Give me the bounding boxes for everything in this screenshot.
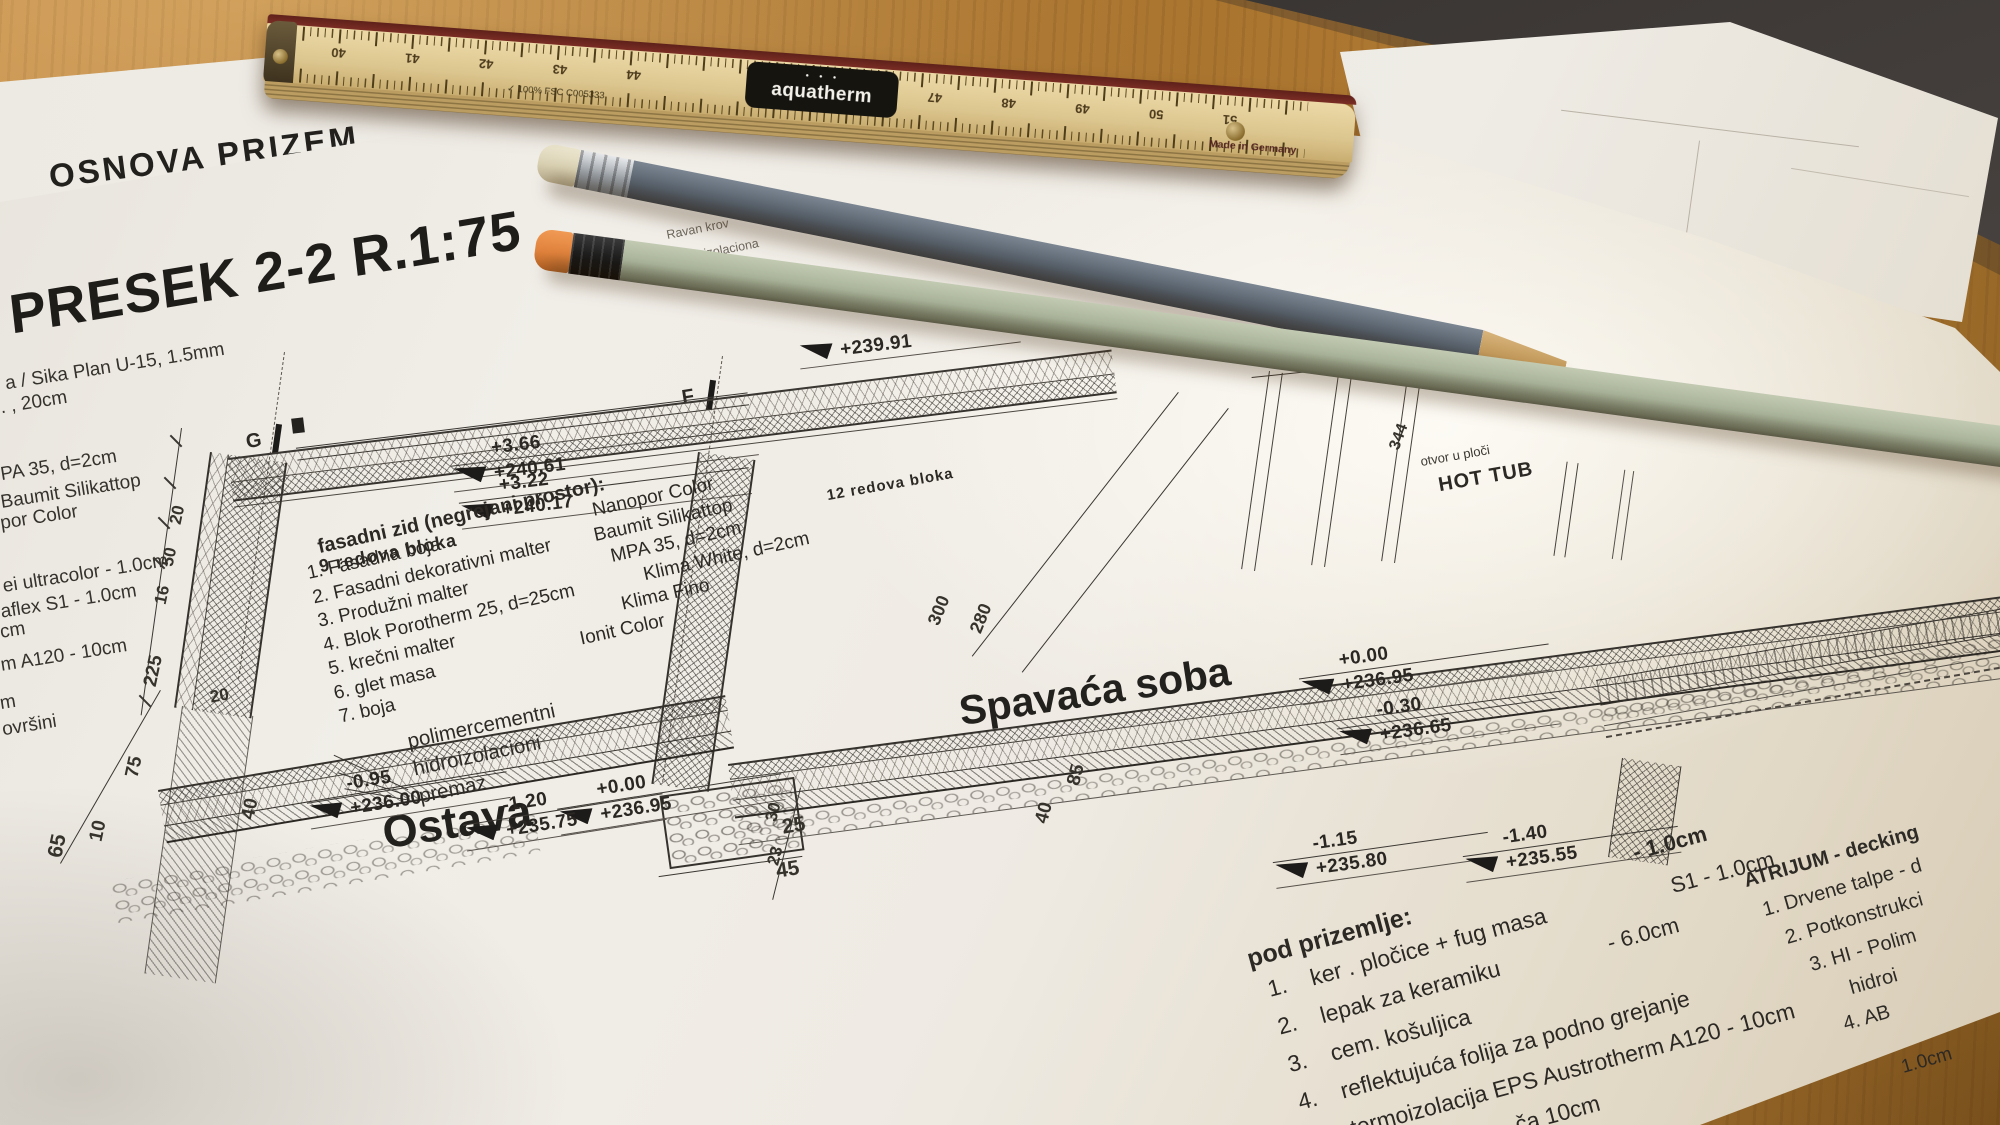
ruler-number: 47 (927, 90, 943, 106)
elevation-triangle-icon (799, 341, 834, 362)
ruler-number: 41 (405, 50, 421, 66)
dim-number: 75 (122, 754, 148, 779)
ruler-number: 50 (1148, 106, 1164, 122)
ruler-number: 43 (552, 62, 568, 78)
dim-number: 16 (151, 584, 174, 607)
dim-number: 20 (208, 685, 230, 708)
elevation-triangle-icon (309, 800, 344, 822)
dim-number: 65 (44, 832, 72, 860)
dim-number: 10 (86, 818, 112, 843)
dim-number: 45 (774, 856, 801, 883)
elevation-triangle-icon (1465, 854, 1500, 875)
elevation-triangle-icon (1275, 860, 1310, 881)
ruler-number: 42 (478, 56, 494, 72)
parapet-cap (291, 417, 305, 433)
ruler-number: 40 (331, 45, 347, 61)
window-frame (1311, 367, 1353, 567)
dim-number: 25 (780, 812, 807, 839)
ruler-number: 44 (626, 67, 642, 83)
ruler-number: 48 (1001, 95, 1017, 111)
dim-number: 40 (238, 796, 264, 821)
fsc-check-icon: ✓ (507, 83, 516, 95)
axis-label-g: G (244, 429, 263, 454)
elevation-triangle-icon (1339, 727, 1374, 748)
elevation-triangle-icon (465, 822, 500, 844)
photo-scene: OSNOVA PRIZEM PRESEK 2-2 R.1:75 a / Sika… (0, 0, 2000, 1125)
dim-number: 50 (158, 546, 181, 569)
elevation-triangle-icon (1301, 677, 1336, 698)
margin-note: cm (0, 618, 27, 644)
dim-number: 20 (166, 504, 189, 527)
ruler-number: 49 (1075, 101, 1091, 117)
